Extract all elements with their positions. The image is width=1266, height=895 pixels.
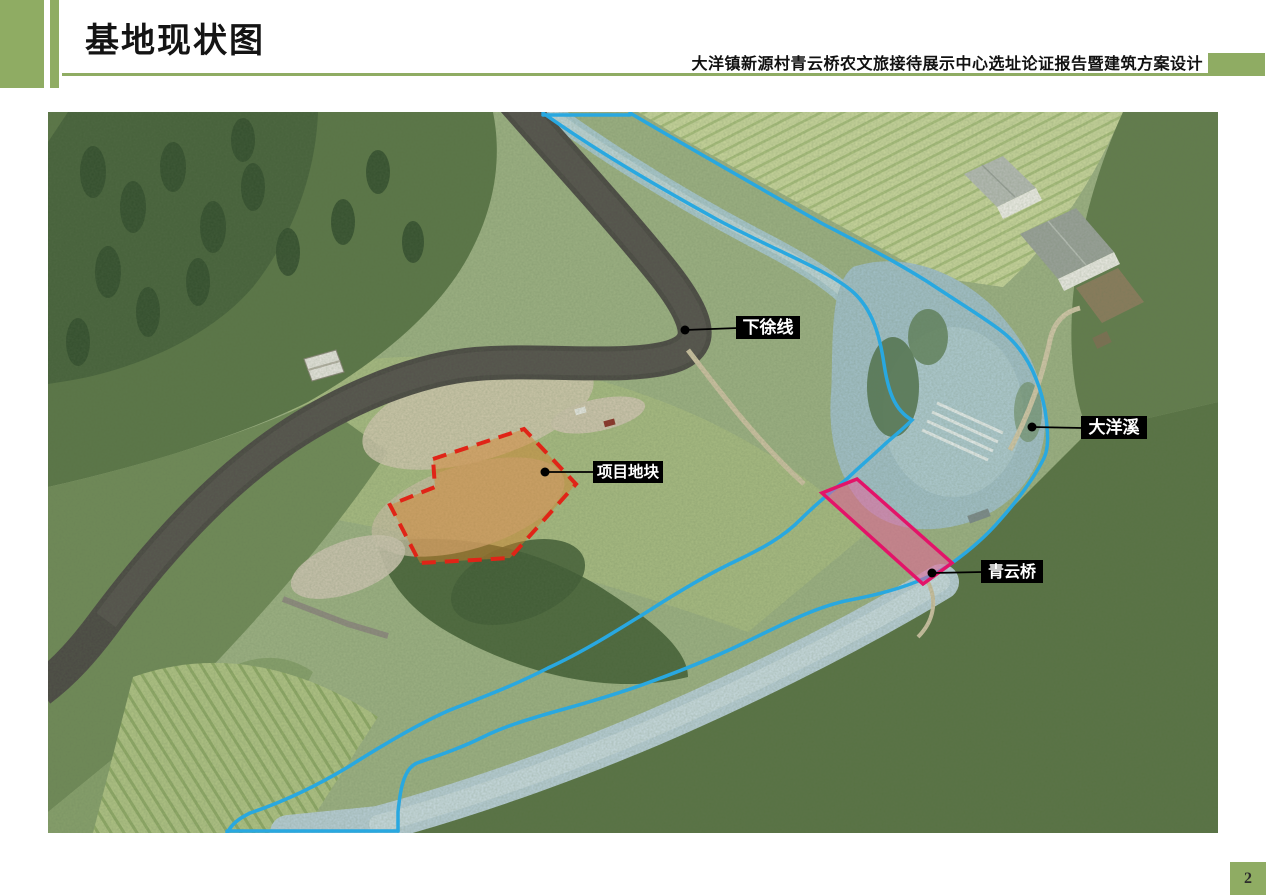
aerial-map-svg: 下徐线 大洋溪 项目地块 青云桥	[48, 112, 1218, 833]
leader-dot	[541, 468, 550, 477]
header-right-accent-block	[1208, 53, 1265, 76]
header-accent-bar	[50, 0, 59, 88]
page-number: 2	[1244, 870, 1252, 888]
label-qingyun-bridge: 青云桥	[988, 562, 1037, 581]
report-subtitle: 大洋镇新源村青云桥农文旅接待展示中心选址论证报告暨建筑方案设计	[691, 50, 1203, 74]
label-dayang-creek: 大洋溪	[1089, 417, 1141, 437]
label-xiaxu-road: 下徐线	[743, 317, 794, 337]
leader-dot	[1028, 423, 1037, 432]
header-rule	[62, 73, 1265, 76]
header-accent-block	[0, 0, 44, 88]
page-number-badge: 2	[1230, 862, 1266, 895]
slide: 基地现状图 大洋镇新源村青云桥农文旅接待展示中心选址论证报告暨建筑方案设计	[0, 0, 1266, 895]
site-aerial-photo: 下徐线 大洋溪 项目地块 青云桥	[48, 112, 1218, 833]
leader-dot	[928, 569, 937, 578]
label-project-parcel: 项目地块	[597, 462, 660, 481]
leader-dot	[681, 326, 690, 335]
page-title: 基地现状图	[85, 22, 265, 63]
